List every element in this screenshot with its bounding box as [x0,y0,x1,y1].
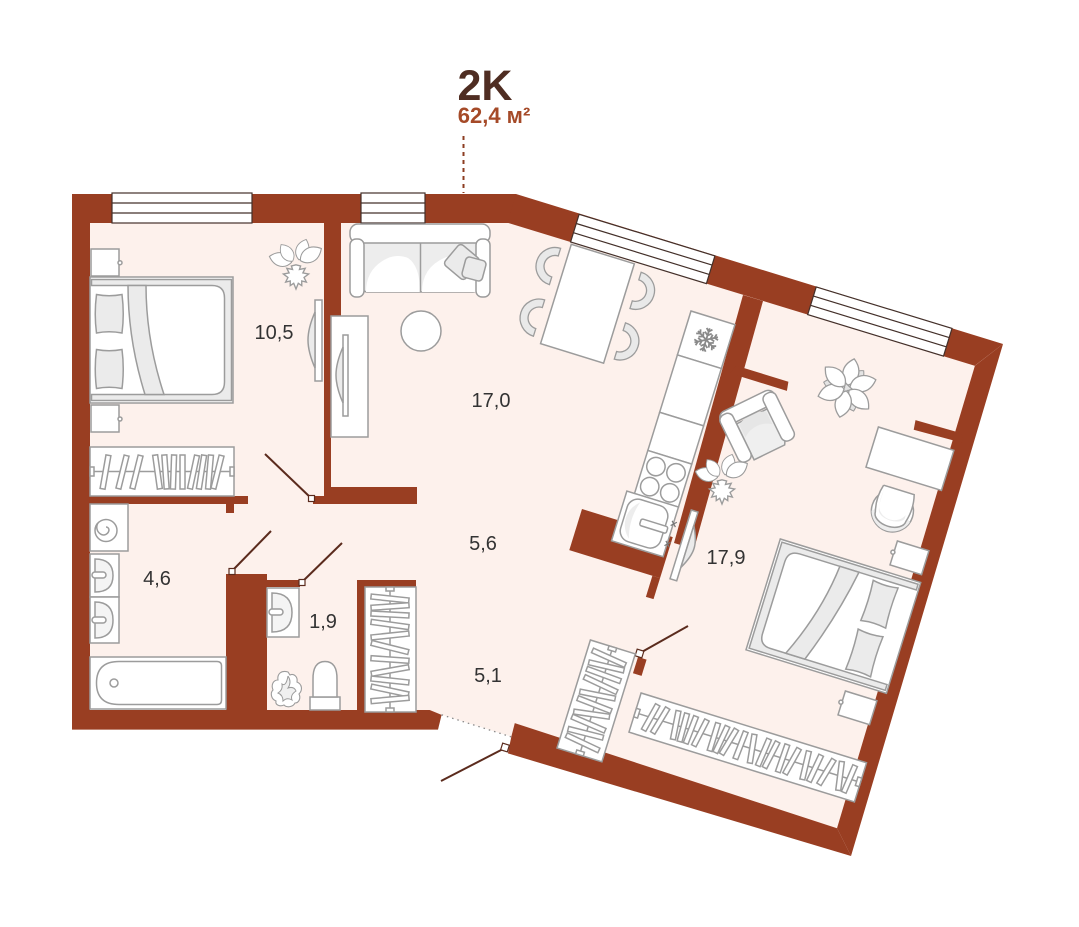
svg-text:4,6: 4,6 [143,568,171,590]
svg-text:62,4 м²: 62,4 м² [458,103,531,128]
svg-text:17,9: 17,9 [707,547,746,569]
svg-text:10,5: 10,5 [255,322,294,344]
svg-text:5,1: 5,1 [474,665,502,687]
svg-text:1,9: 1,9 [309,611,337,633]
svg-text:17,0: 17,0 [472,390,511,412]
svg-text:5,6: 5,6 [469,533,497,555]
